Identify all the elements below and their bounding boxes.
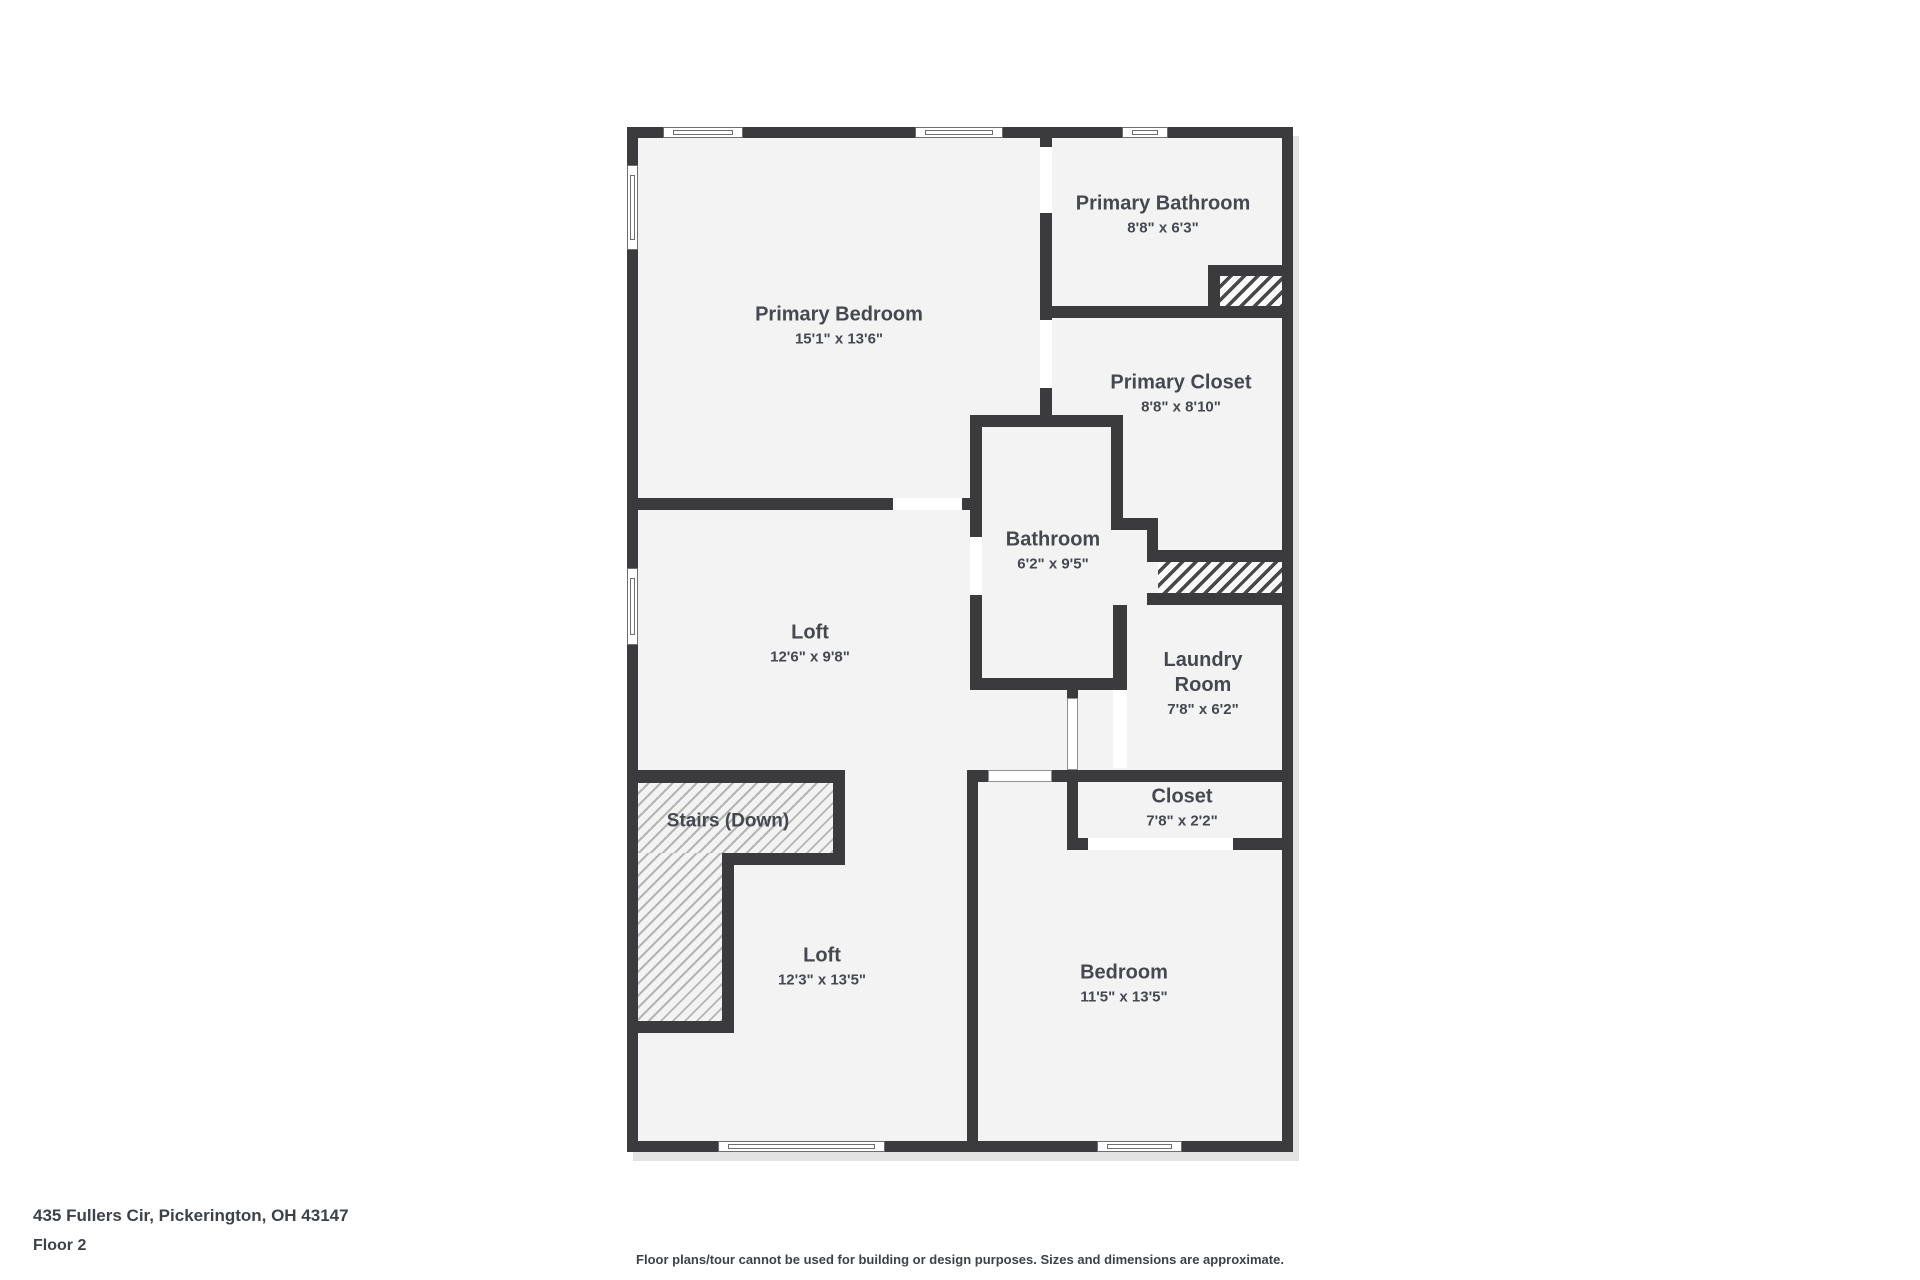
- room-label-primary-bathroom: Primary Bathroom8'8" x 6'3": [1076, 192, 1251, 241]
- window-pane: [630, 578, 635, 635]
- room-dimensions: 12'6" x 9'8": [770, 646, 850, 670]
- wall: [1111, 427, 1123, 530]
- footer-floor-label: Floor 2: [33, 1237, 86, 1255]
- footer-address: 435 Fullers Cir, Pickerington, OH 43147: [33, 1206, 349, 1226]
- door-opening: [1088, 838, 1233, 850]
- window: [915, 127, 1003, 138]
- wall: [1208, 265, 1283, 276]
- door-opening: [970, 537, 982, 595]
- room-label-stairs: Stairs (Down): [667, 809, 789, 834]
- room-label-loft-upper: Loft12'6" x 9'8": [770, 621, 850, 670]
- room-label-primary-bedroom: Primary Bedroom15'1" x 13'6": [755, 303, 923, 352]
- wall: [967, 770, 978, 1152]
- door-opening: [1040, 147, 1052, 213]
- window-pane: [728, 1144, 875, 1149]
- room-label-closet: Closet7'8" x 2'2": [1146, 785, 1217, 834]
- chase-hatch: [1220, 276, 1282, 306]
- room-dimensions: 7'8" x 6'2": [1148, 698, 1258, 722]
- wall: [970, 595, 982, 690]
- room-dimensions: 6'2" x 9'5": [1006, 553, 1100, 577]
- window-pane: [673, 130, 733, 135]
- wall: [1040, 138, 1052, 147]
- wall: [970, 415, 1123, 427]
- window: [627, 165, 638, 250]
- wall: [1233, 838, 1293, 850]
- window: [663, 127, 743, 138]
- wall: [1040, 388, 1052, 416]
- wall: [970, 415, 982, 537]
- room-name: Stairs (Down): [667, 809, 789, 834]
- window-pane: [1107, 1144, 1172, 1149]
- window: [627, 568, 638, 645]
- wall: [1067, 690, 1078, 698]
- wall: [1111, 518, 1158, 530]
- door-opening: [893, 498, 962, 510]
- room-dimensions: 12'3" x 13'5": [778, 969, 866, 993]
- wall: [1052, 770, 1293, 782]
- room-name: Laundry Room: [1148, 648, 1258, 698]
- window: [718, 1141, 885, 1152]
- wall: [1067, 838, 1088, 850]
- door-opening: [1040, 320, 1052, 388]
- wall: [1040, 213, 1052, 320]
- room-label-loft-lower: Loft12'3" x 13'5": [778, 944, 866, 993]
- door-opening: [1113, 690, 1127, 768]
- room-label-primary-closet: Primary Closet8'8" x 8'10": [1110, 371, 1251, 420]
- room-dimensions: 11'5" x 13'5": [1080, 986, 1168, 1010]
- room-name: Loft: [778, 944, 866, 969]
- page: { "plan": { "bbox": {"left": 627, "top":…: [0, 0, 1920, 1280]
- wall: [627, 498, 893, 510]
- window: [1122, 127, 1168, 138]
- wall: [1147, 550, 1293, 562]
- room-dimensions: 8'8" x 8'10": [1110, 396, 1251, 420]
- room-dimensions: 8'8" x 6'3": [1076, 217, 1251, 241]
- wall: [1147, 593, 1293, 605]
- wall: [627, 770, 845, 783]
- wall: [722, 853, 734, 1033]
- window-pane: [1132, 130, 1158, 135]
- room-dimensions: 15'1" x 13'6": [755, 328, 923, 352]
- window-pane: [925, 130, 993, 135]
- room-name: Loft: [770, 621, 850, 646]
- wall: [627, 1021, 734, 1033]
- window-pane: [630, 175, 635, 240]
- room-name: Primary Closet: [1110, 371, 1251, 396]
- chase-hatch: [1158, 562, 1282, 593]
- wall: [970, 678, 1127, 690]
- room-name: Bathroom: [1006, 528, 1100, 553]
- room-label-bathroom: Bathroom6'2" x 9'5": [1006, 528, 1100, 577]
- window: [1097, 1141, 1182, 1152]
- room-name: Primary Bedroom: [755, 303, 923, 328]
- room-name: Closet: [1146, 785, 1217, 810]
- room-name: Primary Bathroom: [1076, 192, 1251, 217]
- wall: [962, 498, 982, 510]
- wall: [1282, 127, 1293, 1152]
- room-label-laundry-room: Laundry Room7'8" x 6'2": [1148, 648, 1258, 722]
- room-label-bedroom: Bedroom11'5" x 13'5": [1080, 961, 1168, 1010]
- room-dimensions: 7'8" x 2'2": [1146, 810, 1217, 834]
- footer-disclaimer: Floor plans/tour cannot be used for buil…: [636, 1252, 1284, 1267]
- cased-opening: [1067, 698, 1078, 770]
- wall: [1040, 306, 1293, 318]
- stairs-hatch: [638, 853, 722, 1021]
- cased-opening: [988, 770, 1052, 782]
- floor-plan: Primary Bedroom15'1" x 13'6"Primary Bath…: [627, 127, 1293, 1152]
- wall: [722, 853, 845, 865]
- room-name: Bedroom: [1080, 961, 1168, 986]
